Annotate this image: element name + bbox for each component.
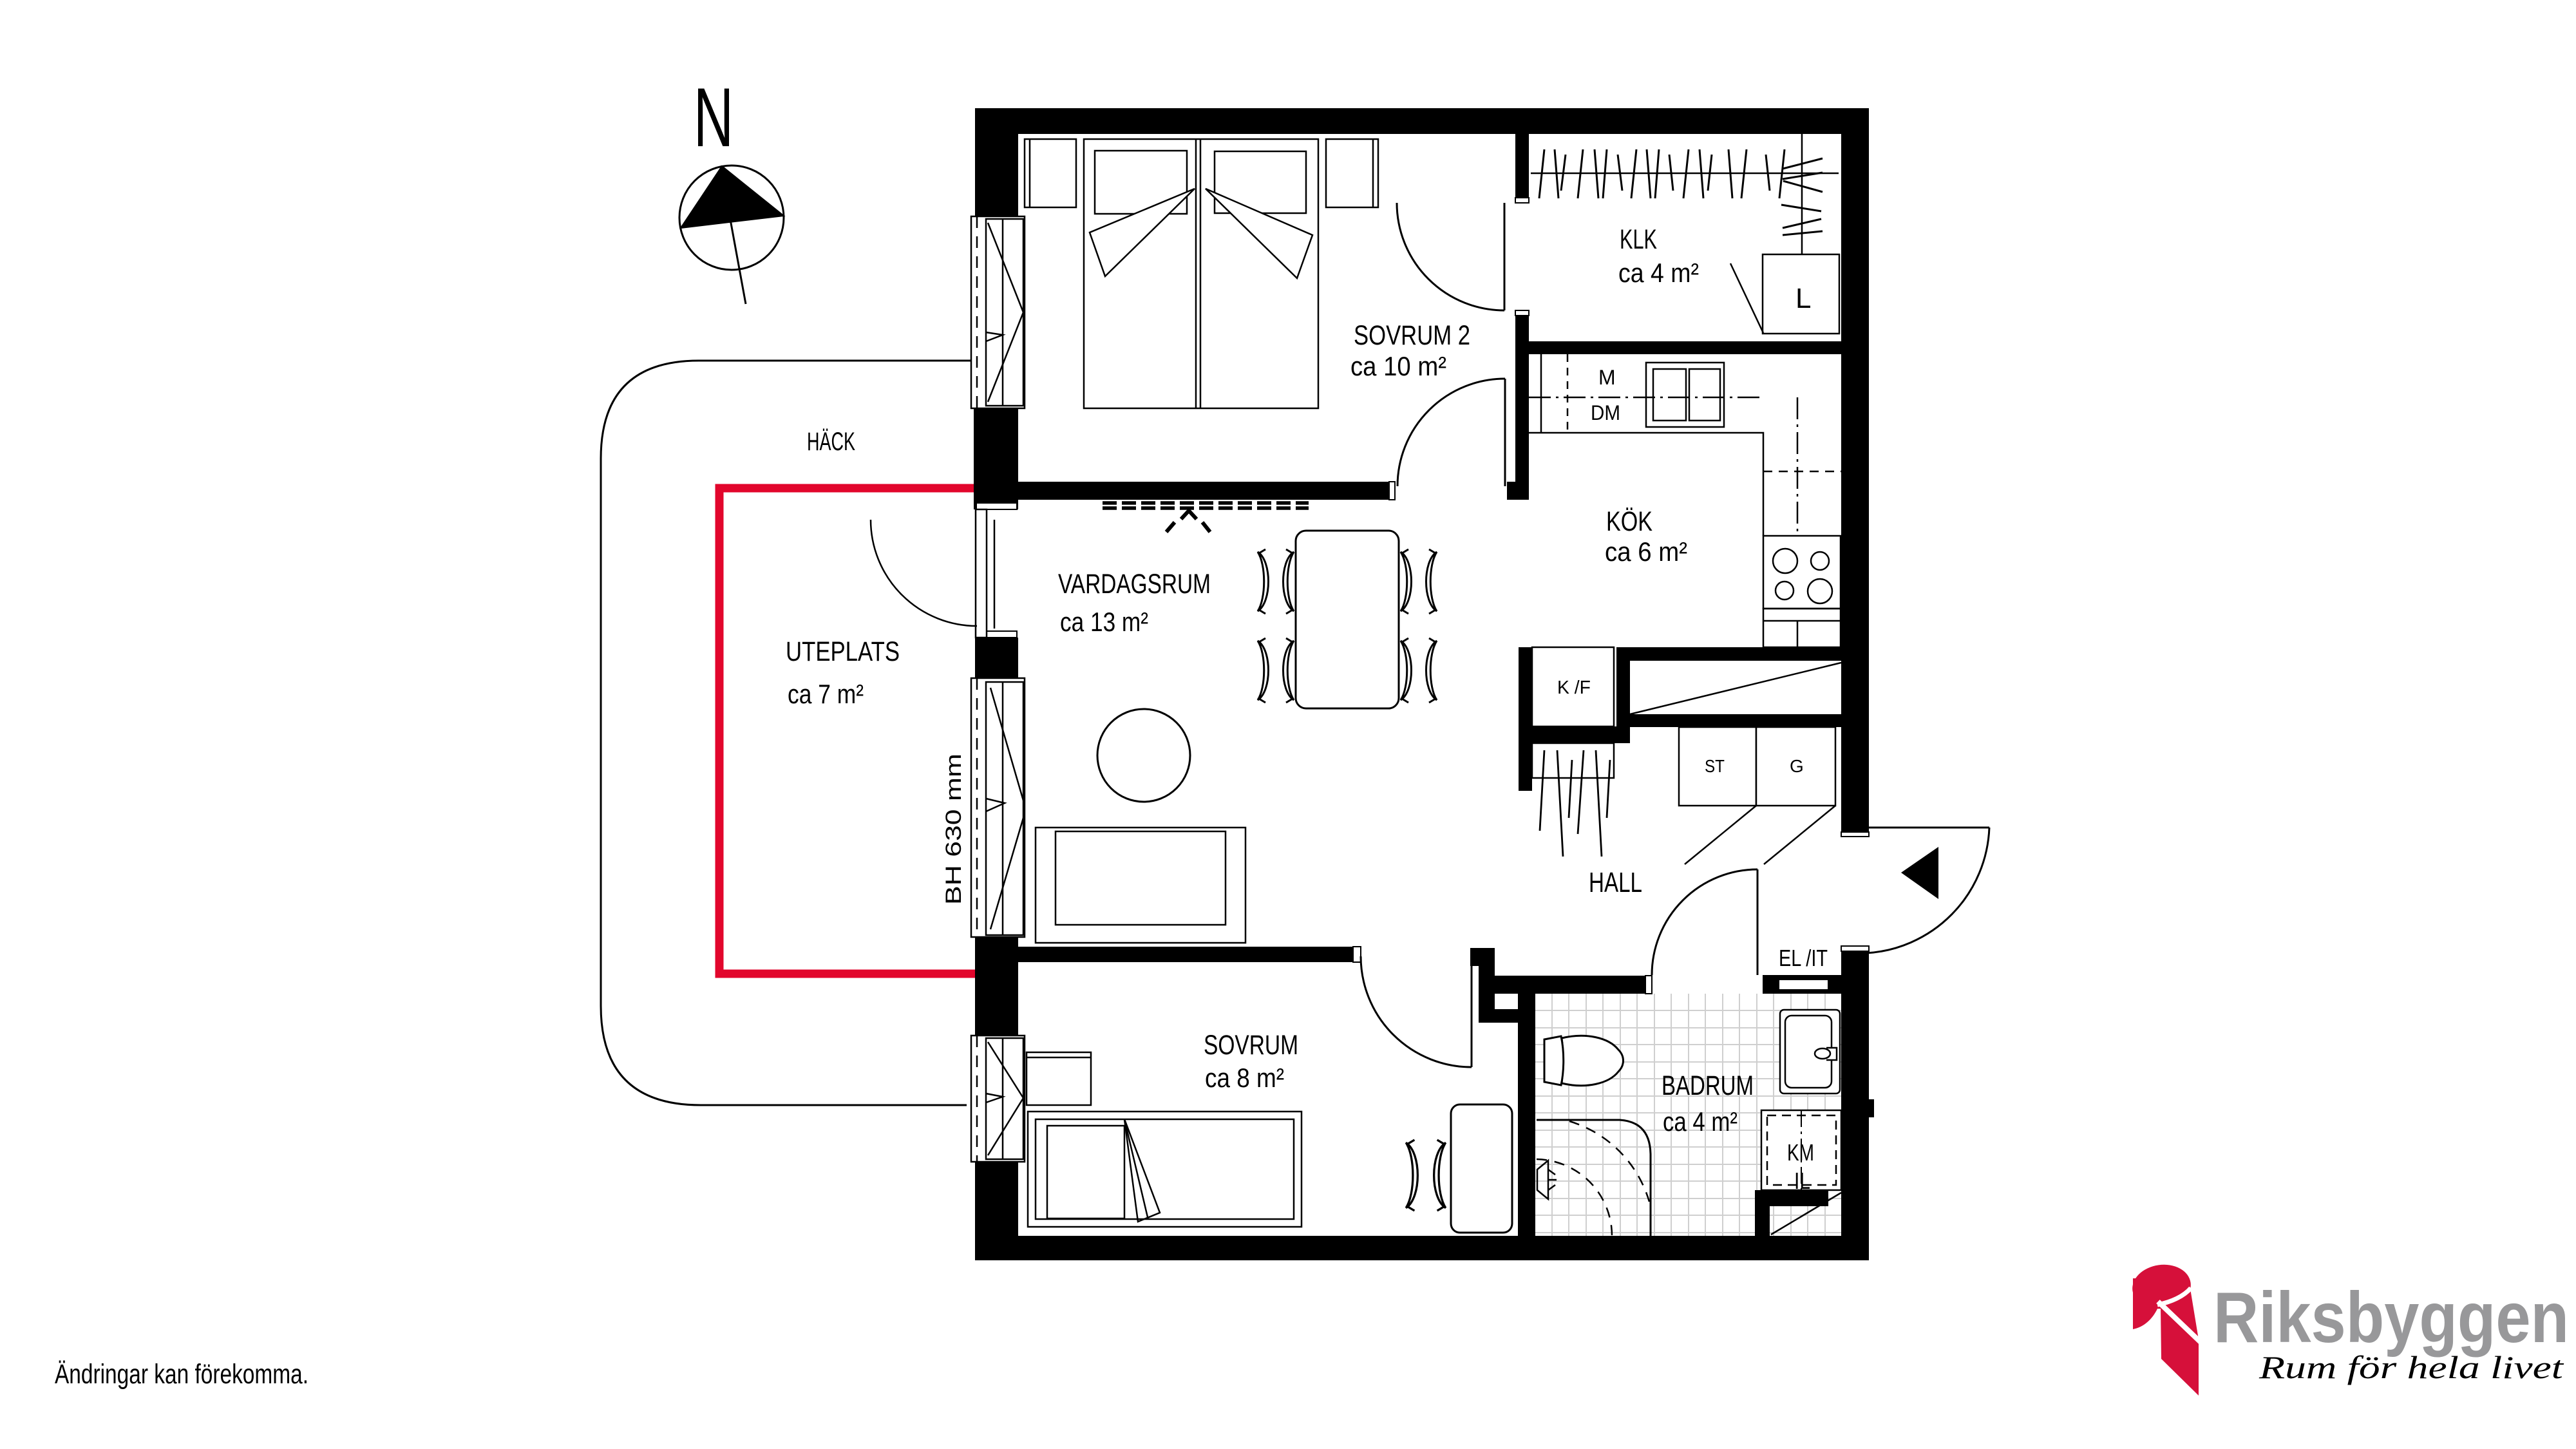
svg-text:N: N [694, 70, 734, 164]
svg-text:HÄCK: HÄCK [807, 428, 855, 456]
svg-text:BADRUM: BADRUM [1662, 1070, 1754, 1101]
svg-text:ca 7 m²: ca 7 m² [788, 679, 864, 709]
svg-text:EL /IT: EL /IT [1779, 945, 1828, 971]
svg-text:ca 4 m²: ca 4 m² [1618, 258, 1699, 288]
svg-text:Ändringar kan förekomma.: Ändringar kan förekomma. [55, 1359, 308, 1390]
svg-text:ca 6 m²: ca 6 m² [1605, 536, 1687, 567]
svg-text:SOVRUM: SOVRUM [1204, 1030, 1298, 1061]
svg-text:SOVRUM 2: SOVRUM 2 [1354, 320, 1470, 351]
svg-text:DM: DM [1591, 401, 1620, 424]
svg-text:ca 13 m²: ca 13 m² [1060, 607, 1148, 637]
svg-text:BH 630 mm: BH 630 mm [942, 753, 966, 905]
svg-text:IL: IL [1794, 1168, 1810, 1194]
svg-text:KM: KM [1787, 1139, 1814, 1166]
svg-text:HALL: HALL [1589, 867, 1642, 898]
svg-text:ca 4 m²: ca 4 m² [1663, 1106, 1738, 1137]
svg-text:Rum för hela livet: Rum för hela livet [2259, 1349, 2564, 1385]
svg-text:ST: ST [1705, 756, 1725, 776]
svg-text:ca 10 m²: ca 10 m² [1350, 351, 1446, 381]
svg-text:M: M [1598, 366, 1616, 389]
svg-text:VARDAGSRUM: VARDAGSRUM [1058, 569, 1211, 600]
svg-text:K /F: K /F [1557, 677, 1591, 698]
svg-text:ca 8 m²: ca 8 m² [1205, 1063, 1284, 1093]
svg-text:L: L [1795, 283, 1811, 314]
svg-text:G: G [1790, 756, 1804, 776]
svg-text:UTEPLATS: UTEPLATS [786, 636, 900, 667]
svg-text:KÖK: KÖK [1606, 506, 1653, 537]
svg-text:KLK: KLK [1620, 224, 1657, 255]
svg-text:Riksbyggen: Riksbyggen [2213, 1278, 2569, 1358]
